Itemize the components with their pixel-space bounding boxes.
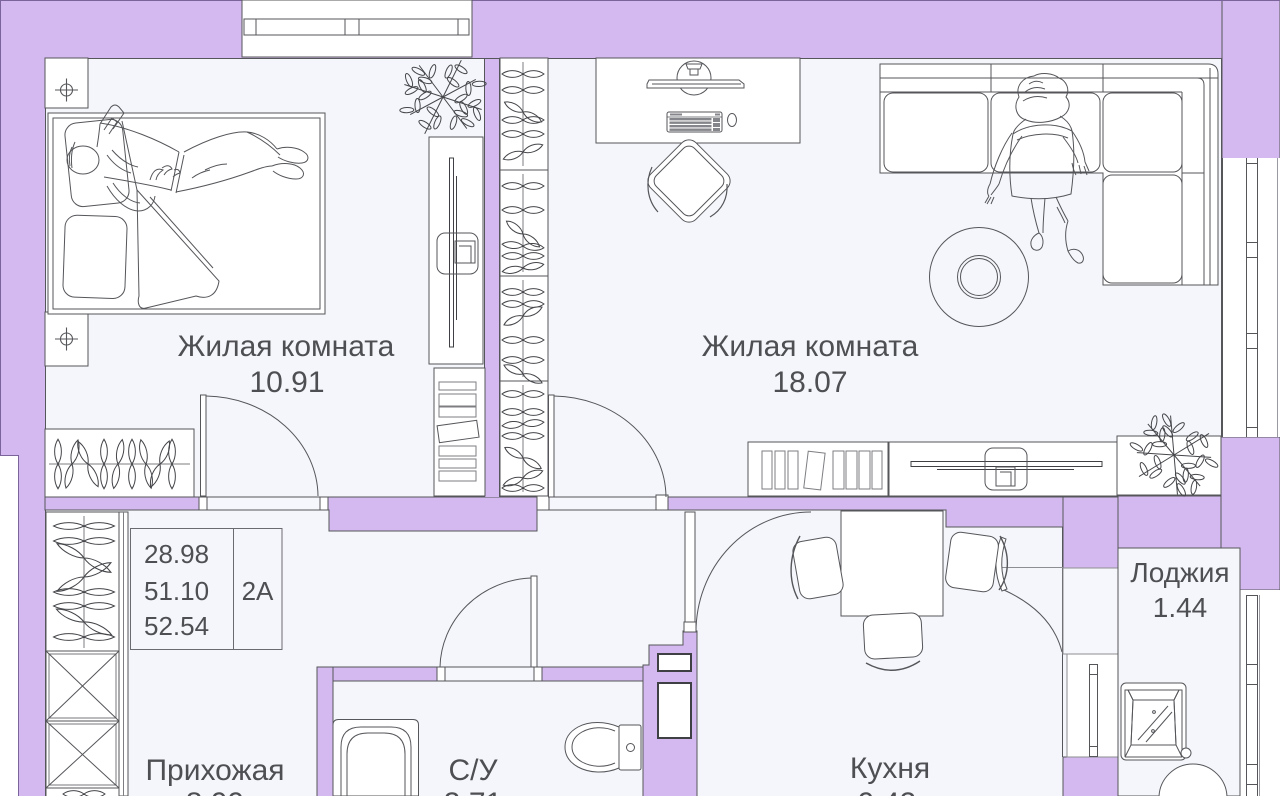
svg-text:Жилая комната: Жилая комната	[702, 330, 919, 363]
svg-text:9.42: 9.42	[858, 787, 916, 796]
svg-text:Лоджия: Лоджия	[1130, 557, 1229, 588]
svg-text:1.44: 1.44	[1153, 592, 1208, 623]
svg-text:10.91: 10.91	[249, 366, 324, 399]
svg-text:28.98: 28.98	[144, 539, 209, 569]
svg-text:2А: 2А	[242, 576, 274, 606]
svg-text:3.71: 3.71	[444, 787, 502, 796]
svg-text:Кухня: Кухня	[850, 752, 930, 785]
svg-text:8.99: 8.99	[186, 787, 244, 796]
svg-text:51.10: 51.10	[144, 576, 209, 606]
svg-text:52.54: 52.54	[144, 611, 209, 641]
svg-text:Прихожая: Прихожая	[145, 754, 284, 787]
svg-text:Жилая комната: Жилая комната	[178, 330, 395, 363]
svg-text:18.07: 18.07	[772, 366, 847, 399]
svg-text:С/У: С/У	[448, 754, 498, 787]
